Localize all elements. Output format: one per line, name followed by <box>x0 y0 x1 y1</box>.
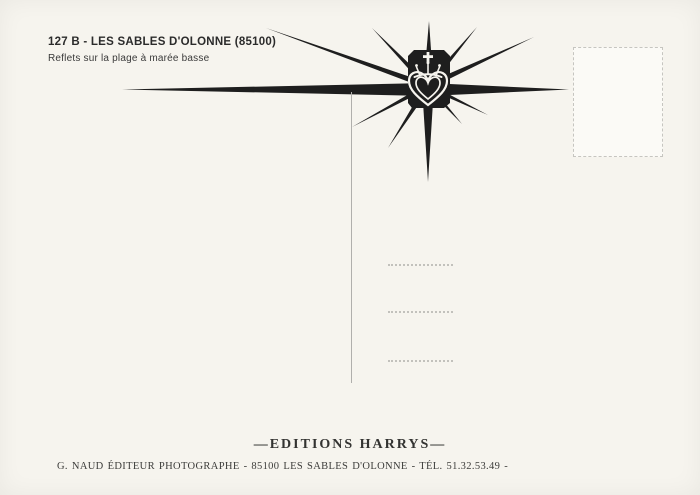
publisher-name: —EDITIONS HARRYS— <box>0 437 700 453</box>
stamp-box <box>573 47 663 157</box>
message-address-divider <box>351 92 352 383</box>
starburst-rays-icon <box>122 21 569 182</box>
postcard-back: 127 B - LES SABLES D'OLONNE (85100) Refl… <box>0 0 700 495</box>
address-line <box>388 360 453 362</box>
photographer-credit: G. NAUD ÉDITEUR PHOTOGRAPHE - 85100 LES … <box>57 461 508 472</box>
address-line <box>388 264 453 266</box>
address-line <box>388 311 453 313</box>
